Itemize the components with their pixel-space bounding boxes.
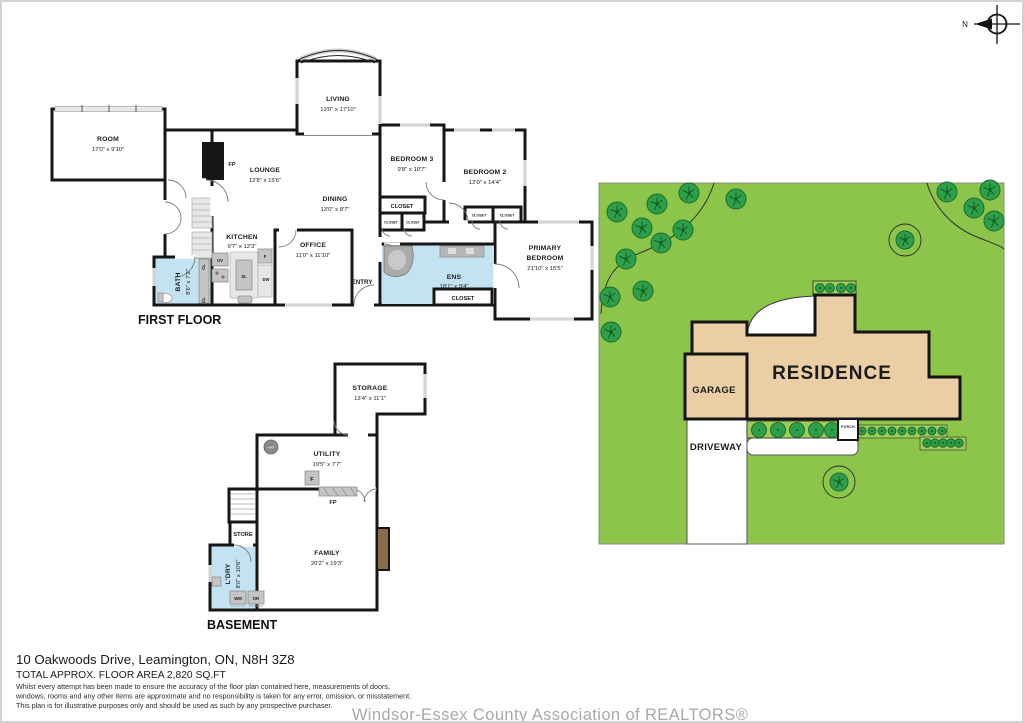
bath-label: BATH: [175, 272, 182, 291]
tree-icon: [651, 233, 671, 253]
bedroom3-dims: 9'8" x 10'7": [397, 167, 426, 173]
first-floor-title: FIRST FLOOR: [138, 313, 221, 327]
tree-icon: [632, 218, 652, 238]
bush-icon: [938, 427, 946, 435]
bush-icon: [908, 427, 916, 435]
primary-label1: PRIMARY: [529, 245, 562, 252]
closet-label-2: CLOSET: [384, 221, 399, 225]
tree-icon: [647, 194, 667, 214]
floor-plan-page: RESIDENCE GARAGE DRIVEWAY PORCH N: [0, 0, 1024, 723]
bath-dims: 8'6" x 7'2": [186, 269, 192, 295]
tree-icon: [937, 182, 957, 202]
stairs: [192, 198, 212, 258]
disclaimer-line2: windows, rooms and any other items are a…: [15, 692, 411, 701]
lounge-label: LOUNGE: [250, 167, 281, 174]
tree-icon: [726, 189, 746, 209]
address: 10 Oakwoods Drive, Leamington, ON, N8H 3…: [16, 652, 295, 667]
bush-icon: [809, 423, 824, 438]
utility-dims: 19'5" x 7'7": [312, 462, 341, 468]
tree-icon: [607, 202, 627, 222]
room-label: ROOM: [97, 136, 119, 143]
storage-label: STORAGE: [353, 385, 388, 392]
bush-icon: [816, 284, 825, 293]
closet-label-5: CLOSET: [500, 214, 515, 218]
tree-icon: [673, 220, 693, 240]
stove-icon: [212, 269, 228, 282]
bush-icon: [947, 439, 955, 447]
bush-icon: [771, 423, 786, 438]
laundry-sink-icon: [212, 577, 221, 586]
living-dims: 13'0" x 17'10": [320, 107, 356, 113]
bush-icon: [888, 427, 896, 435]
footer: 10 Oakwoods Drive, Leamington, ON, N8H 3…: [15, 652, 748, 723]
basement-plan: HWT STORAGE 13'4" x 11'1" UTILITY 19'5" …: [207, 364, 425, 632]
basement-f-label: F: [310, 477, 314, 483]
site-plan: RESIDENCE GARAGE DRIVEWAY PORCH: [599, 180, 1004, 544]
residence-label: RESIDENCE: [772, 363, 892, 384]
f-label: F: [264, 254, 267, 259]
tree-icon: [679, 183, 699, 203]
laundry-label: L'DRY: [225, 563, 232, 584]
storage-dims: 13'4" x 11'1": [354, 396, 386, 402]
office-label: OFFICE: [300, 242, 326, 249]
lounge-dims: 12'8" x 15'6": [249, 178, 281, 184]
hwt-label: HWT: [268, 446, 275, 450]
dining-dims: 13'0" x 8'7": [320, 207, 349, 213]
bedroom2-dims: 12'0" x 14'4": [469, 180, 501, 186]
family-dims: 20'2" x 19'3": [311, 561, 343, 567]
bedroom2-label: BEDROOM 2: [464, 169, 507, 176]
tree-icon: [600, 287, 620, 307]
basement-fp-label: FP: [329, 500, 336, 506]
driveway: [687, 419, 747, 544]
sl-label: SL: [241, 274, 247, 279]
floor-area: TOTAL APPROX. FLOOR AREA 2,820 SQ.FT: [16, 670, 227, 681]
tree-icon: [980, 180, 1000, 200]
sink-icon: [238, 296, 252, 303]
primary-dims: 21'10" x 15'5": [527, 266, 563, 272]
bush-icon: [837, 284, 846, 293]
closet-label-3: CLOSET: [406, 221, 421, 225]
office-dims: 11'0" x 11'10": [296, 253, 331, 259]
driveway-label: DRIVEWAY: [690, 442, 743, 453]
tree-icon: [633, 281, 653, 301]
bedroom3-label: BEDROOM 3: [391, 156, 434, 163]
disclaimer-line3: This plan is for illustrative purposes o…: [16, 701, 332, 710]
disclaimer-line1: Whilst every attempt has been made to en…: [16, 682, 390, 691]
double-vanity-icon: [440, 246, 484, 257]
garage-label: GARAGE: [692, 385, 736, 396]
tree-icon: [601, 322, 621, 342]
room-sunroom: [52, 109, 165, 180]
compass-icon: N: [962, 5, 1020, 44]
bush-icon: [790, 423, 805, 438]
plan-canvas: RESIDENCE GARAGE DRIVEWAY PORCH N: [2, 2, 1024, 723]
porch-label: PORCH: [841, 425, 855, 429]
bush-icon: [878, 427, 886, 435]
ens-label: ENS: [447, 274, 462, 281]
bush-icon: [918, 427, 926, 435]
entry-label: ENTRY: [352, 279, 374, 286]
room-dims: 17'0" x 9'10": [92, 147, 124, 153]
bush-icon: [826, 284, 835, 293]
fireplace: [202, 142, 224, 180]
wm-label: WM: [234, 596, 242, 601]
closet-label-6: CLOSET: [452, 296, 475, 302]
cl-label-a: CL: [201, 264, 206, 270]
first-floor-plan: ROOM 17'0" x 9'10" LIVING 13'0" x 17'10"…: [52, 51, 592, 328]
dw-label: DW: [263, 277, 270, 282]
north-label: N: [962, 20, 968, 29]
bush-icon: [923, 439, 931, 447]
ens-dims: 18'1" x 9'4": [439, 284, 468, 290]
bush-icon: [847, 284, 856, 293]
bush-icon: [858, 427, 866, 435]
fp-label: FP: [228, 162, 235, 168]
porch: [838, 419, 858, 440]
bush-icon: [939, 439, 947, 447]
dining-label: DINING: [323, 196, 348, 203]
bush-icon: [955, 439, 963, 447]
kitchen-dims: 9'7" x 12'3": [227, 244, 256, 250]
family-label: FAMILY: [314, 550, 340, 557]
dr-label: DR: [253, 596, 259, 601]
closet-label-4: CLOSET: [472, 214, 487, 218]
store-label: STORE: [233, 532, 252, 538]
primary-label2: BEDROOM: [527, 255, 564, 262]
bush-icon: [928, 427, 936, 435]
family-fireplace-icon: [377, 528, 389, 570]
tree-icon: [984, 211, 1004, 231]
bush-icon: [898, 427, 906, 435]
bush-icon: [868, 427, 876, 435]
north-arrow: [975, 19, 992, 30]
kitchen-label: KITCHEN: [226, 234, 258, 241]
basement-title: BASEMENT: [207, 618, 278, 632]
bush-icon: [931, 439, 939, 447]
tree-icon: [616, 249, 636, 269]
utility-label: UTILITY: [313, 451, 340, 458]
tree-icon: [964, 198, 984, 218]
closet-label-1: CLOSET: [391, 204, 414, 210]
living-label: LIVING: [326, 96, 350, 103]
cl-label-b: CL: [201, 297, 206, 303]
bush-icon: [752, 423, 767, 438]
laundry-dims: 8'0" x 10'6": [236, 559, 242, 588]
watermark: Windsor-Essex County Association of REAL…: [352, 706, 748, 723]
ov-label: OV: [217, 258, 223, 263]
